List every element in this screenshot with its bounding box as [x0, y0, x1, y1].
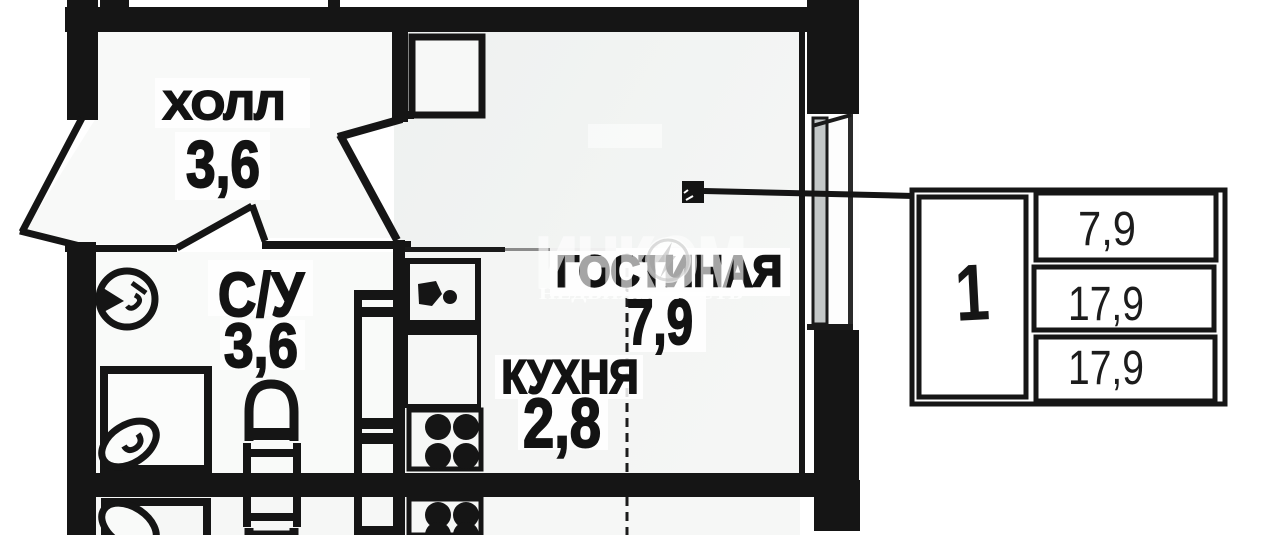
svg-text:2,8: 2,8 — [523, 384, 601, 462]
svg-text:17,9: 17,9 — [1068, 278, 1144, 331]
svg-text:3,6: 3,6 — [224, 312, 298, 381]
svg-text:3,6: 3,6 — [186, 127, 260, 201]
svg-text:НЕДВИЖИМОСТЬ: НЕДВИЖИМОСТЬ — [539, 284, 743, 303]
svg-text:17,9: 17,9 — [1068, 342, 1144, 395]
svg-text:1: 1 — [953, 247, 992, 338]
svg-text:ХОЛЛ: ХОЛЛ — [163, 84, 285, 128]
svg-text:7,9: 7,9 — [1078, 203, 1136, 256]
